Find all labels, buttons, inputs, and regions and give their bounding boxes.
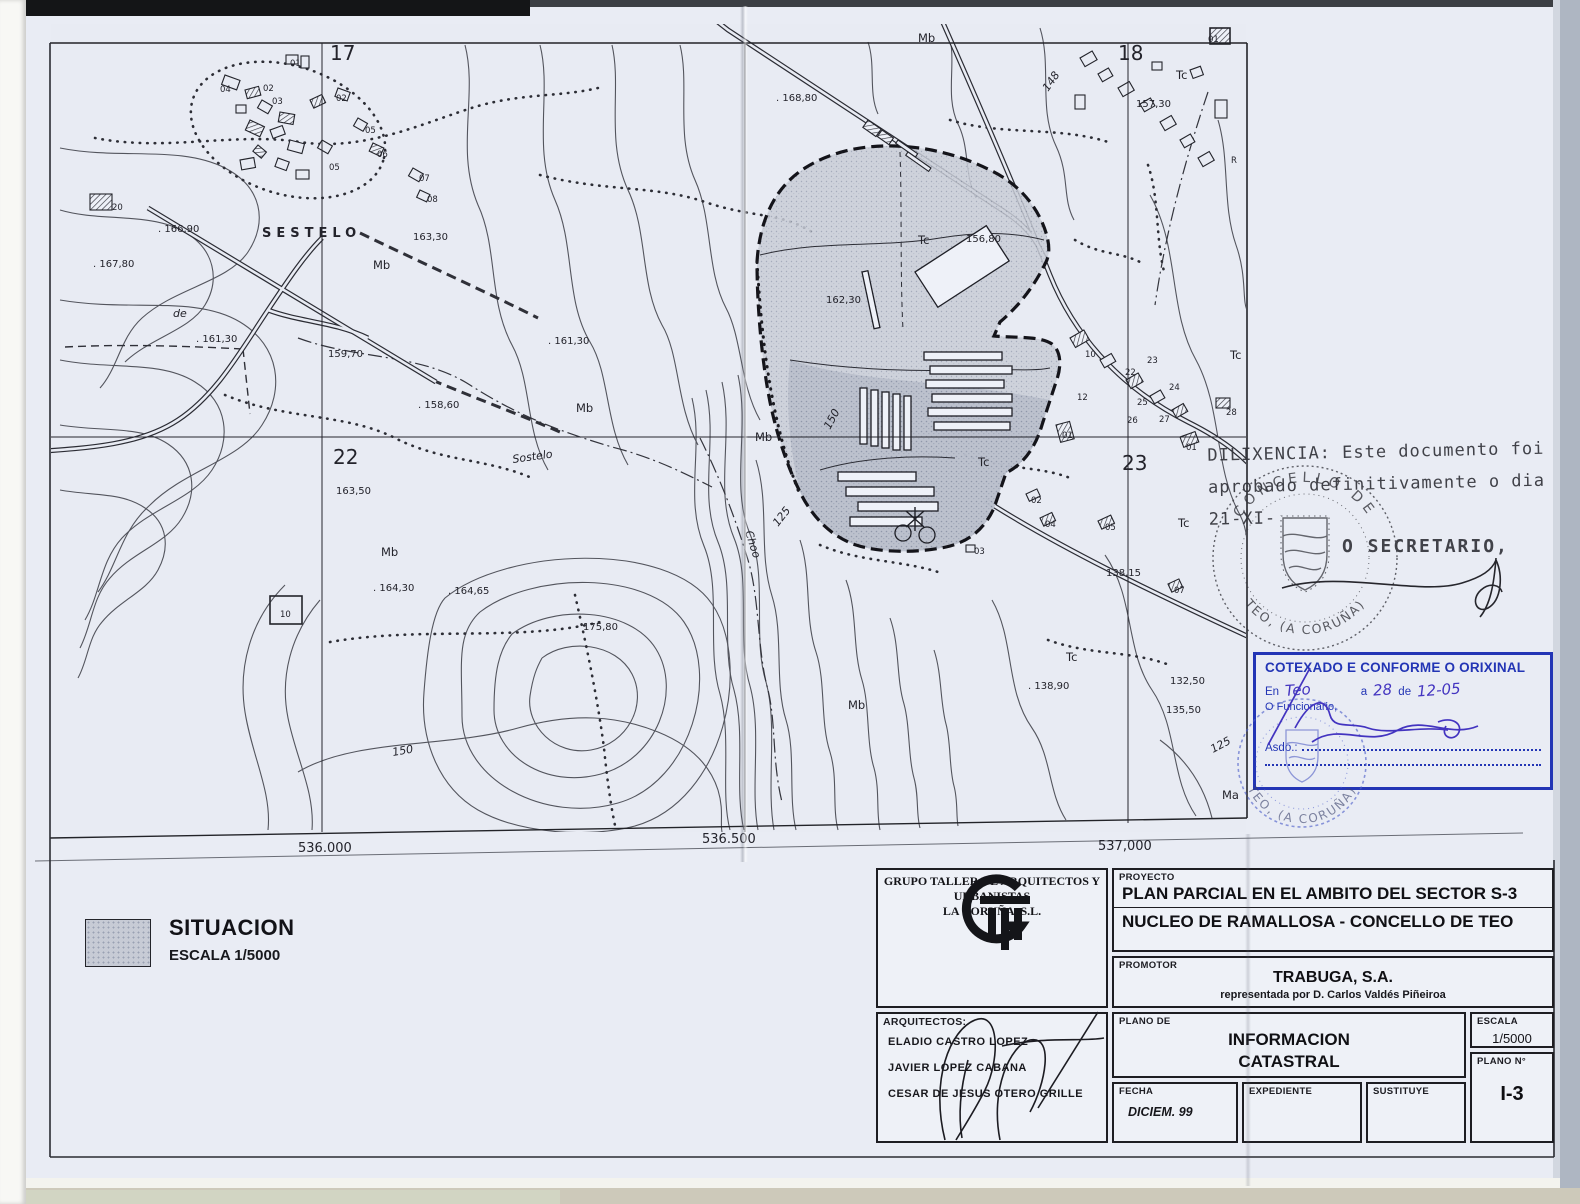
titleblock-planon-cell: PLANO N° I-3 bbox=[1470, 1052, 1554, 1143]
map-label: 162,30 bbox=[826, 295, 861, 306]
expediente-label: EXPEDIENTE bbox=[1244, 1084, 1360, 1097]
fecha-label: FECHA bbox=[1114, 1084, 1236, 1097]
map-label: 138,15 bbox=[1106, 568, 1141, 579]
escala-label: ESCALA bbox=[1472, 1014, 1552, 1027]
map-label: 537,000 bbox=[1098, 839, 1152, 854]
legend: SITUACION ESCALA 1/5000 bbox=[85, 915, 295, 967]
architect-name-2: JAVIER LOPEZ CABANA bbox=[888, 1062, 1106, 1074]
map-label: 20 bbox=[112, 203, 123, 213]
map-label: 08 bbox=[427, 195, 438, 205]
planon-value: I-3 bbox=[1472, 1083, 1552, 1106]
map-label: 175,80 bbox=[583, 622, 618, 633]
map-label: . 158,60 bbox=[418, 400, 459, 411]
map-label: 25 bbox=[1137, 398, 1148, 408]
map-label: 156,80 bbox=[966, 234, 1001, 245]
map-content bbox=[30, 8, 1262, 838]
map-label: 157,30 bbox=[1136, 99, 1171, 110]
cotexado-en-label: En bbox=[1265, 686, 1279, 698]
map-label: 22 bbox=[1125, 368, 1136, 378]
secretario-stamp: O SECRETARIO, bbox=[1342, 536, 1509, 557]
map-label: 17 bbox=[330, 41, 355, 65]
planode-line1: INFORMACION bbox=[1114, 1029, 1464, 1051]
map-label: 04 bbox=[220, 85, 231, 95]
titleblock-planode-cell: PLANO DE INFORMACION CATASTRAL bbox=[1112, 1012, 1466, 1078]
titleblock-proyecto-cell: PROYECTO PLAN PARCIAL EN EL AMBITO DEL S… bbox=[1112, 868, 1554, 952]
scanned-plan-sheet: 17182223536.000536.500537,000. 166,90. 1… bbox=[0, 0, 1580, 1204]
map-label: 135,50 bbox=[1166, 705, 1201, 716]
planode-line2: CATASTRAL bbox=[1114, 1051, 1464, 1073]
map-label: Mb bbox=[918, 31, 935, 45]
cotexado-place-handwritten: Teo bbox=[1284, 680, 1311, 700]
map-label: 23 bbox=[1147, 356, 1158, 366]
map-label: . 164,65 bbox=[448, 586, 489, 597]
architect-name-3: CESAR DE JESUS OTERO GRILLE bbox=[888, 1088, 1106, 1100]
proyecto-label: PROYECTO bbox=[1114, 870, 1552, 883]
map-label: 10 bbox=[280, 610, 291, 620]
map-label: Mb bbox=[848, 698, 865, 712]
map-label: Tc bbox=[1177, 516, 1189, 530]
map-label: . 167,80 bbox=[93, 259, 134, 270]
cotexado-a-label: a bbox=[1361, 686, 1367, 698]
promotor-representative: representada por D. Carlos Valdés Piñeir… bbox=[1114, 989, 1552, 1001]
cotexado-asdo-label: Asdo.: bbox=[1265, 742, 1298, 754]
titleblock-promotor-cell: PROMOTOR TRABUGA, S.A. representada por … bbox=[1112, 956, 1554, 1008]
map-label: 01 bbox=[1062, 431, 1073, 441]
map-label: 22 bbox=[333, 445, 358, 469]
map-label: 132,50 bbox=[1170, 676, 1205, 687]
proyecto-line2: NUCLEO DE RAMALLOSA - CONCELLO DE TEO bbox=[1114, 908, 1552, 936]
map-label: . 164,30 bbox=[373, 583, 414, 594]
map-label: 04 bbox=[1045, 520, 1056, 530]
dilixencia-stamp: DILIXENCIA: Este documento foi aprobado … bbox=[1207, 432, 1569, 536]
cotexado-title: COTEXADO E CONFORME O ORIXINAL bbox=[1265, 660, 1541, 675]
promotor-name: TRABUGA, S.A. bbox=[1114, 969, 1552, 987]
map-label: 05 bbox=[365, 126, 376, 136]
map-label: . 161,30 bbox=[548, 336, 589, 347]
cotexado-funcionario-label: O Funcionario, bbox=[1265, 701, 1541, 713]
map-label: Mb bbox=[373, 258, 390, 272]
map-label: 163,50 bbox=[336, 486, 371, 497]
map-label: 01 bbox=[1208, 35, 1219, 45]
map-label: 12 bbox=[1077, 393, 1088, 403]
cotexado-stamp-box: COTEXADO E CONFORME O ORIXINAL En Teo a … bbox=[1253, 652, 1553, 790]
map-label: 06 bbox=[377, 150, 388, 160]
map-label: 536.500 bbox=[702, 832, 756, 847]
signature-dotted-line bbox=[1302, 739, 1541, 751]
map-label: 05 bbox=[329, 163, 340, 173]
titleblock-sustituye-cell: SUSTITUYE bbox=[1366, 1082, 1466, 1143]
map-label: Tc bbox=[1175, 68, 1187, 82]
map-label: 27 bbox=[1159, 415, 1170, 425]
map-label: . 166,90 bbox=[158, 224, 199, 235]
fecha-value: DICIEM. 99 bbox=[1114, 1097, 1236, 1119]
titleblock-fecha-cell: FECHA DICIEM. 99 bbox=[1112, 1082, 1238, 1143]
map-label: 23 bbox=[1122, 451, 1147, 475]
map-label: 18 bbox=[1118, 41, 1143, 65]
map-label: 07 bbox=[1174, 586, 1185, 596]
map-label: Ma bbox=[1222, 788, 1239, 802]
map-label: 07 bbox=[419, 174, 430, 184]
map-label: . 138,90 bbox=[1028, 681, 1069, 692]
map-label: de bbox=[173, 307, 187, 320]
map-label: 536.000 bbox=[298, 841, 352, 856]
cotexado-month-handwritten: 12-05 bbox=[1417, 680, 1462, 701]
map-label: 28 bbox=[1226, 408, 1237, 418]
sustituye-label: SUSTITUYE bbox=[1368, 1084, 1464, 1097]
titleblock-expediente-cell: EXPEDIENTE bbox=[1242, 1082, 1362, 1143]
map-label: 02 bbox=[336, 94, 347, 104]
map-label: 01 bbox=[1186, 443, 1197, 453]
map-label: 163,30 bbox=[413, 232, 448, 243]
map-label: 02 bbox=[263, 84, 274, 94]
map-label: 05 bbox=[1105, 523, 1116, 533]
map-label: Tc bbox=[1229, 348, 1241, 362]
map-label: 01 bbox=[290, 59, 301, 69]
map-label: 24 bbox=[1169, 383, 1180, 393]
legend-swatch bbox=[85, 919, 151, 967]
map-label: R bbox=[1231, 156, 1237, 166]
titleblock-logo-cell: GRUPO TALLER DE ARQUITECTOS Y URBANISTAS… bbox=[876, 868, 1108, 1008]
dotted-line bbox=[1265, 762, 1541, 766]
map-label: Mb bbox=[381, 545, 398, 559]
map-label: 03 bbox=[272, 97, 283, 107]
map-label: 26 bbox=[1127, 416, 1138, 426]
map-label: SESTELO bbox=[262, 226, 361, 241]
map-label: . 168,80 bbox=[776, 93, 817, 104]
arquitectos-label: ARQUITECTOS: bbox=[878, 1014, 1106, 1028]
planode-label: PLANO DE bbox=[1114, 1014, 1464, 1027]
proyecto-line1: PLAN PARCIAL EN EL AMBITO DEL SECTOR S-3 bbox=[1114, 883, 1552, 908]
map-label: 159,70 bbox=[328, 349, 363, 360]
map-label: . 161,30 bbox=[196, 334, 237, 345]
titleblock-architects-cell: ARQUITECTOS: ELADIO CASTRO LOPEZ JAVIER … bbox=[876, 1012, 1108, 1143]
map-label: Mb bbox=[755, 430, 772, 444]
map-label: 03 bbox=[974, 547, 985, 557]
cotexado-day-handwritten: 28 bbox=[1373, 680, 1393, 699]
legend-title: SITUACION bbox=[169, 915, 295, 941]
legend-scale: ESCALA 1/5000 bbox=[169, 947, 295, 964]
map-label: Mb bbox=[576, 401, 593, 415]
cotexado-de-label: de bbox=[1398, 686, 1411, 698]
escala-value: 1/5000 bbox=[1472, 1031, 1552, 1046]
map-label: Tc bbox=[977, 455, 989, 469]
titleblock-escala-cell: ESCALA 1/5000 bbox=[1470, 1012, 1554, 1048]
architect-name-1: ELADIO CASTRO LOPEZ bbox=[888, 1036, 1106, 1048]
gtu-logo bbox=[878, 870, 1106, 962]
map-label: 02 bbox=[1031, 496, 1042, 506]
map-label: Tc bbox=[917, 233, 929, 247]
map-label: 10 bbox=[1085, 350, 1096, 360]
map-label: Tc bbox=[1065, 650, 1077, 664]
planon-label: PLANO N° bbox=[1472, 1054, 1552, 1067]
